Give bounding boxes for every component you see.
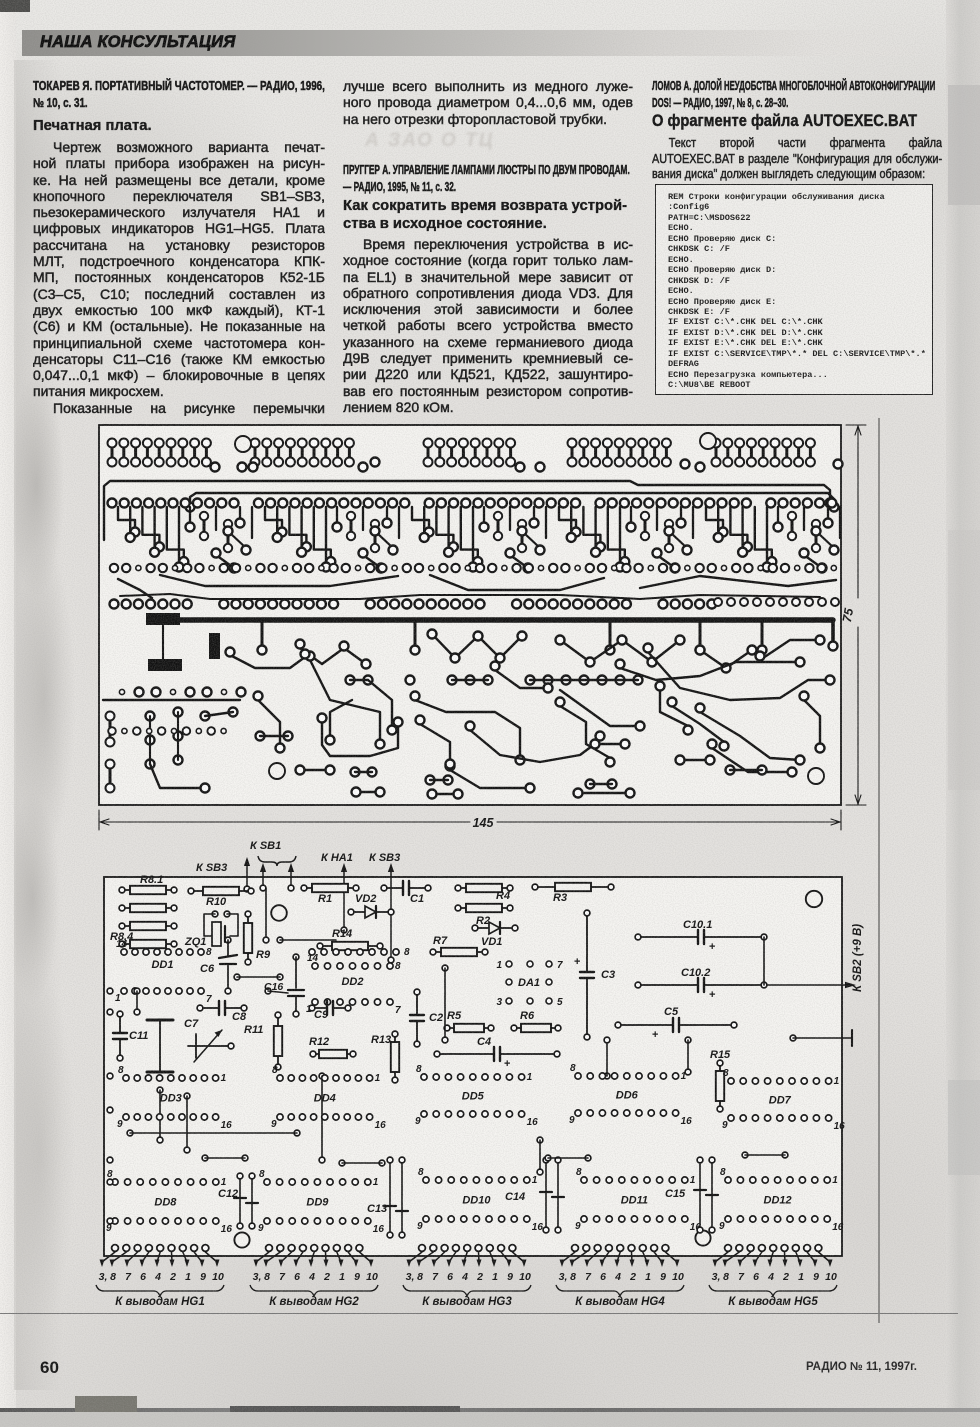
svg-text:1: 1 xyxy=(527,1072,533,1083)
svg-text:VD2: VD2 xyxy=(355,893,376,905)
svg-text:6: 6 xyxy=(447,1271,453,1283)
svg-text:8: 8 xyxy=(259,1169,265,1180)
svg-text:10: 10 xyxy=(672,1271,684,1283)
svg-text:1: 1 xyxy=(115,993,121,1004)
svg-text:7: 7 xyxy=(125,1271,132,1283)
svg-text:1: 1 xyxy=(339,1271,345,1283)
svg-text:2: 2 xyxy=(782,1271,789,1283)
svg-text:16: 16 xyxy=(532,1222,544,1233)
svg-text:ZQ1: ZQ1 xyxy=(184,936,206,948)
svg-text:C10.1: C10.1 xyxy=(683,919,712,931)
svg-text:R4: R4 xyxy=(496,890,510,902)
svg-text:+: + xyxy=(652,1029,658,1041)
svg-text:8: 8 xyxy=(110,1271,116,1283)
svg-text:R2: R2 xyxy=(476,915,490,927)
svg-text:DD3: DD3 xyxy=(160,1093,182,1105)
svg-text:1: 1 xyxy=(832,1175,838,1186)
svg-text:DD4: DD4 xyxy=(314,1093,336,1105)
svg-text:16: 16 xyxy=(221,1224,233,1235)
svg-text:1: 1 xyxy=(681,1071,687,1082)
svg-text:C3: C3 xyxy=(601,969,615,981)
svg-text:7: 7 xyxy=(206,994,212,1005)
svg-text:4: 4 xyxy=(614,1271,621,1283)
svg-text:К SB1: К SB1 xyxy=(250,840,281,852)
svg-text:DD1: DD1 xyxy=(151,959,173,971)
svg-text:9: 9 xyxy=(813,1271,819,1283)
svg-text:R12: R12 xyxy=(309,1036,329,1048)
svg-text:10: 10 xyxy=(212,1271,224,1283)
svg-text:9: 9 xyxy=(200,1271,206,1283)
svg-text:7: 7 xyxy=(432,1271,439,1283)
svg-text:C7: C7 xyxy=(184,1018,199,1030)
svg-text:3,: 3, xyxy=(99,1271,108,1283)
svg-text:DD8: DD8 xyxy=(154,1197,177,1209)
svg-text:К HA1: К HA1 xyxy=(321,852,353,864)
svg-text:8: 8 xyxy=(418,1167,424,1178)
svg-text:9: 9 xyxy=(507,1271,513,1283)
svg-text:1: 1 xyxy=(798,1271,804,1283)
svg-text:R10: R10 xyxy=(206,896,227,908)
svg-text:C11: C11 xyxy=(129,1030,148,1042)
svg-text:DD9: DD9 xyxy=(306,1197,329,1209)
svg-text:1: 1 xyxy=(375,1073,381,1084)
svg-text:К выводам HG1: К выводам HG1 xyxy=(115,1296,205,1308)
svg-text:6: 6 xyxy=(600,1271,606,1283)
svg-text:К SB2 (+9 В): К SB2 (+9 В) xyxy=(852,924,864,992)
svg-text:R11: R11 xyxy=(244,1024,263,1036)
svg-text:9: 9 xyxy=(106,1223,112,1234)
svg-text:R8.1: R8.1 xyxy=(140,874,163,886)
svg-text:R14: R14 xyxy=(332,928,352,940)
svg-text:+: + xyxy=(504,1058,510,1070)
svg-text:14: 14 xyxy=(116,939,128,950)
svg-text:DD12: DD12 xyxy=(764,1195,792,1207)
svg-text:C15: C15 xyxy=(665,1188,686,1200)
svg-text:9: 9 xyxy=(117,1119,123,1130)
svg-text:1: 1 xyxy=(690,1175,696,1186)
svg-text:3,: 3, xyxy=(406,1271,415,1283)
svg-text:C14: C14 xyxy=(505,1191,525,1203)
svg-text:+: + xyxy=(709,941,715,953)
svg-text:1: 1 xyxy=(373,1177,379,1188)
svg-text:R1: R1 xyxy=(318,893,332,905)
svg-text:C8: C8 xyxy=(232,1011,247,1023)
svg-text:6: 6 xyxy=(753,1271,759,1283)
svg-text:R5: R5 xyxy=(447,1010,462,1022)
svg-text:1: 1 xyxy=(492,1271,498,1283)
svg-text:10: 10 xyxy=(825,1271,837,1283)
svg-text:+: + xyxy=(709,989,715,1001)
svg-text:3,: 3, xyxy=(712,1271,721,1283)
svg-text:DD2: DD2 xyxy=(341,976,363,988)
svg-text:3,: 3, xyxy=(559,1271,568,1283)
svg-text:1: 1 xyxy=(645,1271,651,1283)
svg-text:1: 1 xyxy=(532,1175,538,1186)
svg-text:16: 16 xyxy=(221,1120,233,1131)
svg-text:1: 1 xyxy=(185,1271,191,1283)
svg-text:1: 1 xyxy=(221,1177,227,1188)
svg-text:9: 9 xyxy=(354,1271,360,1283)
svg-text:4: 4 xyxy=(154,1271,161,1283)
svg-text:C2: C2 xyxy=(429,1012,443,1024)
svg-text:16: 16 xyxy=(832,1222,844,1233)
svg-text:9: 9 xyxy=(660,1271,666,1283)
svg-text:R7: R7 xyxy=(433,935,448,947)
svg-text:6: 6 xyxy=(294,1271,300,1283)
svg-text:9: 9 xyxy=(258,1223,264,1234)
svg-text:К выводам HG3: К выводам HG3 xyxy=(422,1296,512,1308)
svg-text:DA1: DA1 xyxy=(518,977,540,989)
svg-text:К выводам HG5: К выводам HG5 xyxy=(728,1296,818,1308)
svg-text:C13: C13 xyxy=(367,1203,387,1215)
svg-text:9: 9 xyxy=(719,1221,725,1232)
svg-text:8: 8 xyxy=(723,1271,729,1283)
svg-text:C1: C1 xyxy=(410,893,424,905)
svg-text:4: 4 xyxy=(767,1271,774,1283)
svg-text:7: 7 xyxy=(557,960,563,971)
svg-text:8: 8 xyxy=(118,1065,124,1076)
svg-text:8: 8 xyxy=(417,1271,423,1283)
svg-text:8: 8 xyxy=(272,1065,278,1076)
svg-text:8: 8 xyxy=(720,1167,726,1178)
svg-text:К SB3: К SB3 xyxy=(196,862,227,874)
svg-text:7: 7 xyxy=(585,1271,592,1283)
svg-text:16: 16 xyxy=(375,1120,387,1131)
svg-text:C16: C16 xyxy=(264,981,283,993)
svg-text:R3: R3 xyxy=(553,892,567,904)
svg-text:C10.2: C10.2 xyxy=(681,967,710,979)
svg-text:8: 8 xyxy=(416,1064,422,1075)
svg-text:DD10: DD10 xyxy=(462,1195,491,1207)
svg-text:7: 7 xyxy=(279,1271,286,1283)
svg-text:9: 9 xyxy=(569,1115,575,1126)
svg-text:14: 14 xyxy=(307,953,319,964)
svg-text:4: 4 xyxy=(461,1271,468,1283)
svg-text:16: 16 xyxy=(373,1224,385,1235)
svg-text:8: 8 xyxy=(576,1167,582,1178)
svg-text:VD1: VD1 xyxy=(481,936,502,948)
svg-text:DD11: DD11 xyxy=(621,1195,648,1207)
svg-text:9: 9 xyxy=(722,1120,728,1131)
svg-text:C5: C5 xyxy=(664,1006,679,1018)
svg-text:10: 10 xyxy=(519,1271,531,1283)
svg-text:5: 5 xyxy=(557,997,563,1008)
svg-text:2: 2 xyxy=(476,1271,483,1283)
svg-text:7: 7 xyxy=(738,1271,745,1283)
svg-text:К SB3: К SB3 xyxy=(369,852,400,864)
svg-text:4: 4 xyxy=(308,1271,315,1283)
svg-text:R15: R15 xyxy=(710,1049,731,1061)
svg-text:R13: R13 xyxy=(371,1034,391,1046)
svg-text:8: 8 xyxy=(570,1271,576,1283)
svg-text:8: 8 xyxy=(404,947,410,958)
svg-text:16: 16 xyxy=(834,1121,846,1132)
svg-text:7: 7 xyxy=(395,1005,401,1016)
svg-text:9: 9 xyxy=(417,1221,423,1232)
svg-text:DD7: DD7 xyxy=(769,1095,792,1107)
svg-text:3: 3 xyxy=(496,997,502,1008)
svg-text:16: 16 xyxy=(527,1117,539,1128)
svg-text:8: 8 xyxy=(206,947,212,958)
svg-text:DD5: DD5 xyxy=(462,1091,485,1103)
svg-text:9: 9 xyxy=(271,1119,277,1130)
svg-text:К выводам HG4: К выводам HG4 xyxy=(575,1296,665,1308)
svg-text:16: 16 xyxy=(681,1116,693,1127)
svg-text:C6: C6 xyxy=(200,963,215,975)
svg-text:6: 6 xyxy=(140,1271,146,1283)
svg-text:C9: C9 xyxy=(314,1009,329,1021)
svg-text:1: 1 xyxy=(221,1073,227,1084)
svg-text:R6: R6 xyxy=(520,1010,535,1022)
svg-text:1: 1 xyxy=(834,1076,840,1087)
svg-text:8: 8 xyxy=(395,961,401,972)
svg-text:9: 9 xyxy=(575,1221,581,1232)
svg-text:DD6: DD6 xyxy=(616,1090,639,1102)
svg-text:10: 10 xyxy=(366,1271,378,1283)
svg-text:C4: C4 xyxy=(477,1036,491,1048)
svg-text:8: 8 xyxy=(723,1068,729,1079)
svg-text:+: + xyxy=(574,956,580,968)
svg-text:R9: R9 xyxy=(256,949,271,961)
svg-text:2: 2 xyxy=(323,1271,330,1283)
svg-text:9: 9 xyxy=(415,1116,421,1127)
svg-text:8: 8 xyxy=(264,1271,270,1283)
svg-text:К выводам HG2: К выводам HG2 xyxy=(269,1296,359,1308)
svg-text:2: 2 xyxy=(629,1271,636,1283)
svg-text:1: 1 xyxy=(496,960,502,971)
svg-text:3,: 3, xyxy=(253,1271,262,1283)
svg-text:8: 8 xyxy=(570,1063,576,1074)
svg-text:2: 2 xyxy=(169,1271,176,1283)
